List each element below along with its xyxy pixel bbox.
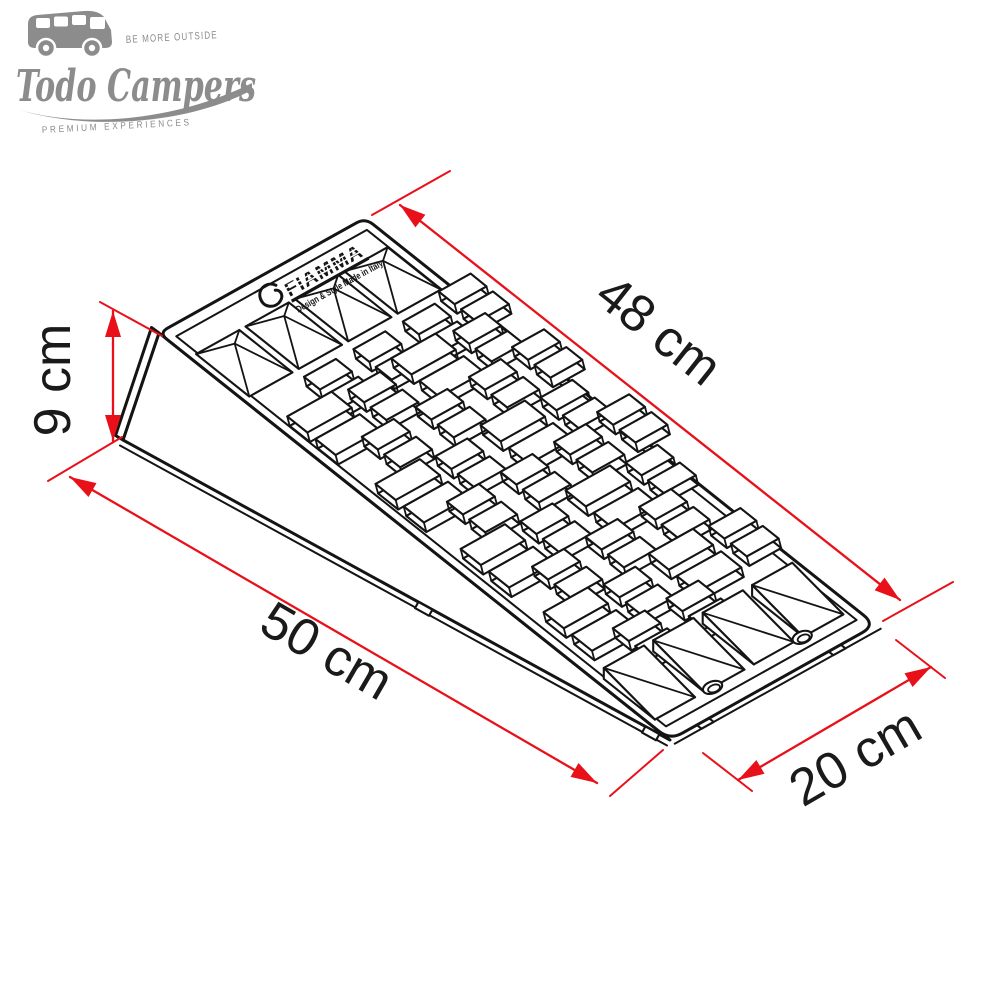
dimension-arrowhead xyxy=(875,578,900,600)
brand-tagline-top: BE MORE OUTSIDE xyxy=(126,29,219,46)
dimension-arrowhead xyxy=(571,763,598,783)
dim-48-label: 48 cm xyxy=(585,264,732,397)
dimension-arrowhead xyxy=(905,667,932,687)
dim-9-50-tick xyxy=(48,437,122,481)
dimension-arrowhead xyxy=(70,477,97,497)
dim-48-tick xyxy=(372,171,450,215)
dim-50-tick xyxy=(610,750,663,796)
dimension-arrowhead xyxy=(738,760,765,780)
van-window xyxy=(72,15,86,25)
dimension-arrowhead xyxy=(400,205,425,227)
van-windshield xyxy=(90,17,105,29)
van-icon xyxy=(28,11,112,57)
dim-48-tick xyxy=(883,582,953,621)
van-window xyxy=(36,18,50,28)
leveling-ramp-drawing: FIAMMA Design & Style Made in Italy xyxy=(116,221,881,746)
dim-20-tick xyxy=(703,753,752,791)
van-window xyxy=(54,17,68,27)
diagram-stage: BE MORE OUTSIDE Todo Campers PREMIUM EXP… xyxy=(0,0,1000,1000)
todocampers-logo: BE MORE OUTSIDE Todo Campers PREMIUM EXP… xyxy=(16,11,256,136)
dim-50-label: 50 cm xyxy=(251,591,403,712)
dim-20-label: 20 cm xyxy=(780,697,932,819)
van-hub xyxy=(89,45,95,51)
brand-name: Todo Campers xyxy=(16,61,256,112)
van-hub xyxy=(43,45,49,51)
ramp-technical-drawing: BE MORE OUTSIDE Todo Campers PREMIUM EXP… xyxy=(0,0,1000,1000)
dim-9-label: 9 cm xyxy=(24,324,82,437)
dimension-arrowhead xyxy=(105,311,121,337)
